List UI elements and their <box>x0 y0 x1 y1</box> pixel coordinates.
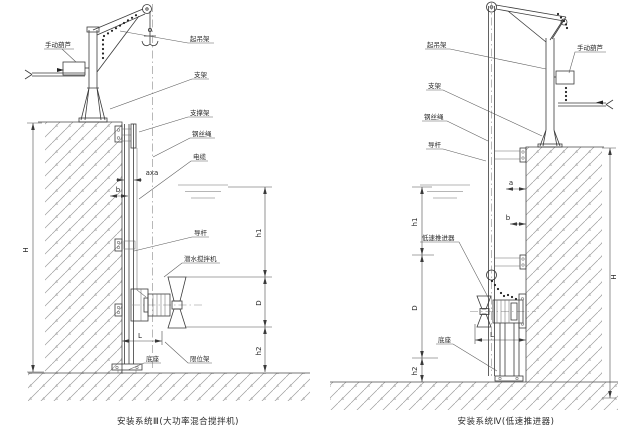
dim-H-left: H <box>22 247 30 252</box>
label-limit-frame-left: 限位架 <box>190 354 210 363</box>
label-manual-hoist-left: 手动葫芦 <box>45 40 72 49</box>
dim-h1-left: h1 <box>255 229 263 238</box>
dim-axa-left: axa <box>146 169 159 177</box>
manual-hoist-body <box>25 62 89 79</box>
dim-b-right: b <box>506 214 511 222</box>
dim-L-left: L <box>138 332 142 340</box>
label-guide-rod-right: 导杆 <box>428 140 442 149</box>
label-support-frame-left: 支撑架 <box>190 108 210 117</box>
dim-h2-left: h2 <box>255 347 263 356</box>
label-guide-rod-left: 导杆 <box>194 228 208 237</box>
right-wall <box>526 147 604 382</box>
right-diagram: H h1 D h2 L a b 起吊架 手动葫芦 支架 钢丝绳 <box>330 2 618 427</box>
right-thruster <box>477 270 526 381</box>
left-submersible-mixer <box>131 277 186 328</box>
left-water-surface <box>178 185 228 198</box>
dim-D-left: D <box>255 300 263 305</box>
left-diagram: H h1 D h2 L b axa 手动葫芦 起吊架 支架 <box>22 4 310 427</box>
label-bracket-right: 支架 <box>428 81 442 90</box>
label-manual-hoist-right: 手动葫芦 <box>577 43 604 52</box>
left-caption: 安装系统Ⅲ(大功率混合搅拌机) <box>117 416 239 427</box>
dim-D-right: D <box>411 305 419 310</box>
label-wire-rope-right: 钢丝绳 <box>424 112 444 121</box>
dim-b-left: b <box>116 186 121 194</box>
label-mixer-left: 潜水搅拌机 <box>184 254 217 263</box>
label-bracket-left: 支架 <box>194 70 208 79</box>
right-caption: 安装系统Ⅳ(低速推进器) <box>458 416 555 427</box>
dim-H-right: H <box>610 274 618 279</box>
manual-hoist-body-right <box>554 71 613 109</box>
dim-h2-right: h2 <box>411 367 419 376</box>
label-wire-rope-left: 钢丝绳 <box>192 129 212 138</box>
left-wall <box>38 122 122 373</box>
label-base-left: 底座 <box>146 354 160 363</box>
label-lifting-frame-right: 起吊架 <box>427 41 447 49</box>
label-cable-left: 电缆 <box>193 152 207 161</box>
label-thruster-right: 低速推进器 <box>422 233 455 242</box>
left-crane-davit <box>25 5 158 123</box>
dim-h1-right: h1 <box>411 218 419 227</box>
left-floor <box>28 373 310 401</box>
dim-L-right: L <box>490 331 494 339</box>
label-lifting-frame-left: 起吊架 <box>190 35 210 43</box>
right-crane-davit <box>496 5 613 147</box>
label-base-right: 底座 <box>438 335 452 344</box>
hoist-chain <box>102 14 137 59</box>
installation-diagram-svg: H h1 D h2 L b axa 手动葫芦 起吊架 支架 <box>0 0 620 434</box>
technical-drawing-canvas: H h1 D h2 L b axa 手动葫芦 起吊架 支架 <box>0 0 620 434</box>
right-floor <box>330 382 618 410</box>
dim-a-right: a <box>509 179 513 187</box>
